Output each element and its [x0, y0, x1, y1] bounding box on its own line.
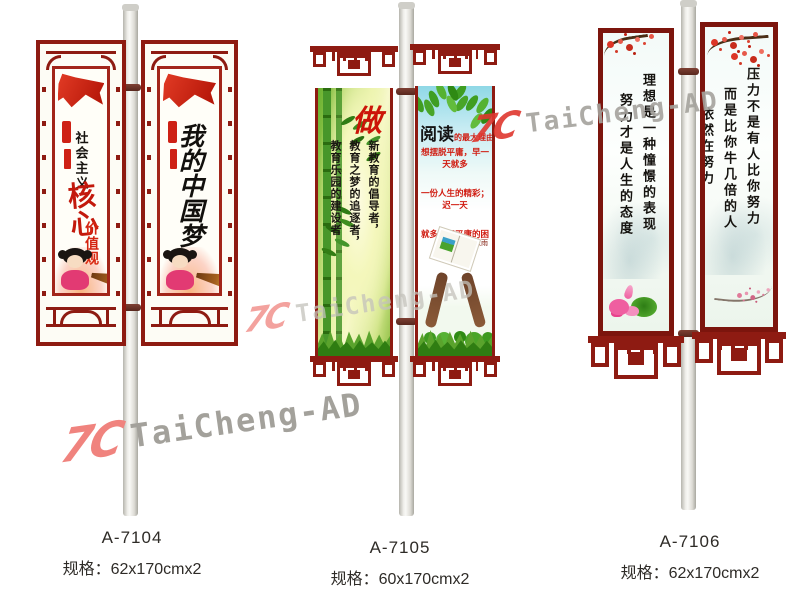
lattice-post — [217, 310, 220, 324]
product-code: A-7104 — [40, 528, 224, 548]
doll-girl-icon — [60, 248, 90, 290]
lotus-flower-icon — [609, 299, 629, 315]
plum-blossom-icon — [711, 39, 718, 46]
leaves-icon — [464, 93, 481, 112]
lattice-footer — [310, 356, 398, 396]
red-flag-icon — [58, 73, 105, 109]
product-spec: 规格：62x170cmx2 — [595, 559, 785, 583]
product-label-a7104: A-7104 规格：62x170cmx2 — [40, 528, 224, 579]
quote-line: 一份人生的精彩；迟一天 — [420, 187, 490, 211]
product-spec: 规格：62x170cmx2 — [40, 555, 224, 579]
banner-panel-a7104-left: 社会主义 核心 价值观 — [36, 40, 126, 346]
banner-vertical-text: 新教育的倡导者， 教育之梦的追逐者， 教育乐园的建设者 — [324, 140, 384, 248]
banner-calligraphy: 我的中国梦 — [172, 123, 208, 248]
banner-title: 阅读 — [420, 125, 454, 144]
lattice-post — [106, 310, 109, 324]
lattice-rail — [151, 51, 228, 54]
product-code: A-7106 — [595, 532, 785, 552]
banner-china-dream: 我的中国梦 — [157, 66, 222, 296]
banner-panel-a7105-left: 做 新教育的倡导者， 教育之梦的追逐者， 教育乐园的建设者 — [310, 46, 398, 396]
hands-holding-book-icon — [419, 232, 491, 328]
arm-icon — [424, 272, 448, 329]
product-label-a7106: A-7106 规格：62x170cmx2 — [595, 532, 785, 583]
plum-blossom-icon — [737, 293, 742, 298]
doll-girl-icon — [165, 248, 195, 290]
pole-clamp — [678, 68, 699, 75]
product-spec: 规格：60x170cmx2 — [305, 565, 495, 589]
lattice-post — [53, 310, 56, 324]
lattice-rail — [46, 51, 116, 54]
leaves-icon — [427, 89, 442, 109]
text-column: 教育之梦的追逐者， — [346, 140, 362, 248]
banner-vertical-text: 理想是一种憧憬的表现 努力才是人生的态度 — [611, 73, 661, 237]
lattice-footer — [410, 356, 500, 396]
light-pole-3 — [681, 0, 696, 510]
text-column: 理想是一种憧憬的表现 — [638, 73, 657, 237]
banner-core-values: 社会主义 核心 价值观 — [52, 66, 110, 296]
banner-education: 做 新教育的倡导者， 教育之梦的追逐者， 教育乐园的建设者 — [315, 88, 393, 356]
text-column: 教育乐园的建设者 — [327, 140, 343, 248]
banner-title-rest: 的最大理由是 — [454, 133, 495, 142]
banner-big-char: 做 — [352, 96, 382, 140]
open-book-icon — [429, 226, 481, 272]
taicheng-logo-icon: 7C — [242, 298, 289, 338]
banner-panel-a7104-right: 我的中国梦 — [141, 40, 238, 346]
lattice-rail — [151, 324, 228, 327]
plum-blossom-icon — [607, 41, 614, 48]
red-flag-icon — [163, 73, 216, 109]
banner-panel-a7106-right: 压力不是有人比你努力 而是比你牛几倍的人 依然在努力 — [700, 22, 778, 332]
watermark-brand-text: TaiCheng-AD — [128, 388, 364, 452]
taicheng-logo-icon: 7C — [57, 414, 125, 470]
text-column: 压力不是有人比你努力 — [742, 67, 761, 231]
lattice-post — [159, 310, 162, 324]
quote-line: 想摆脱平庸，早一天就多 — [420, 146, 490, 170]
lattice-rail — [46, 324, 116, 327]
grass-icon — [318, 327, 390, 356]
product-catalog-image: 社会主义 核心 价值观 我的中国梦 — [0, 0, 800, 600]
banner-vertical-text: 压力不是有人比你努力 而是比你牛几倍的人 依然在努力 — [700, 67, 765, 231]
arc-bracket — [169, 310, 211, 324]
lattice-footer — [692, 332, 786, 388]
grass-icon — [418, 327, 492, 356]
red-seal-icon — [62, 121, 71, 143]
text-column: 新教育的倡导者， — [365, 140, 381, 248]
lattice-header — [410, 44, 500, 86]
text-column: 而是比你牛几倍的人 — [719, 67, 738, 231]
banner-panel-a7106-left: 理想是一种憧憬的表现 努力才是人生的态度 — [598, 28, 674, 336]
lotus-leaf-icon — [631, 297, 657, 317]
lattice-header — [310, 46, 398, 88]
lattice-ticks — [42, 70, 46, 296]
plum-blossom-icon — [731, 53, 738, 60]
text-column: 努力才是人生的态度 — [615, 73, 634, 237]
plum-branch-icon — [714, 280, 772, 306]
banner-title-row: 阅读的最大理由是 — [420, 120, 490, 145]
lattice-footer — [588, 336, 684, 392]
text-column: 依然在努力 — [700, 67, 715, 231]
lattice-ticks — [228, 70, 232, 296]
lattice-ticks — [116, 70, 120, 296]
banner-reading: 阅读的最大理由是 想摆脱平庸，早一天就多 一份人生的精彩；迟一天 就多一天平庸的… — [415, 86, 495, 356]
arm-icon — [460, 272, 486, 329]
lotus-bud-icon — [623, 284, 634, 300]
product-code: A-7105 — [305, 538, 495, 558]
arc-bracket — [60, 310, 102, 324]
product-label-a7105: A-7105 规格：60x170cmx2 — [305, 538, 495, 589]
lattice-ticks — [147, 70, 151, 296]
banner-panel-a7105-right: 阅读的最大理由是 想摆脱平庸，早一天就多 一份人生的精彩；迟一天 就多一天平庸的… — [410, 44, 500, 396]
